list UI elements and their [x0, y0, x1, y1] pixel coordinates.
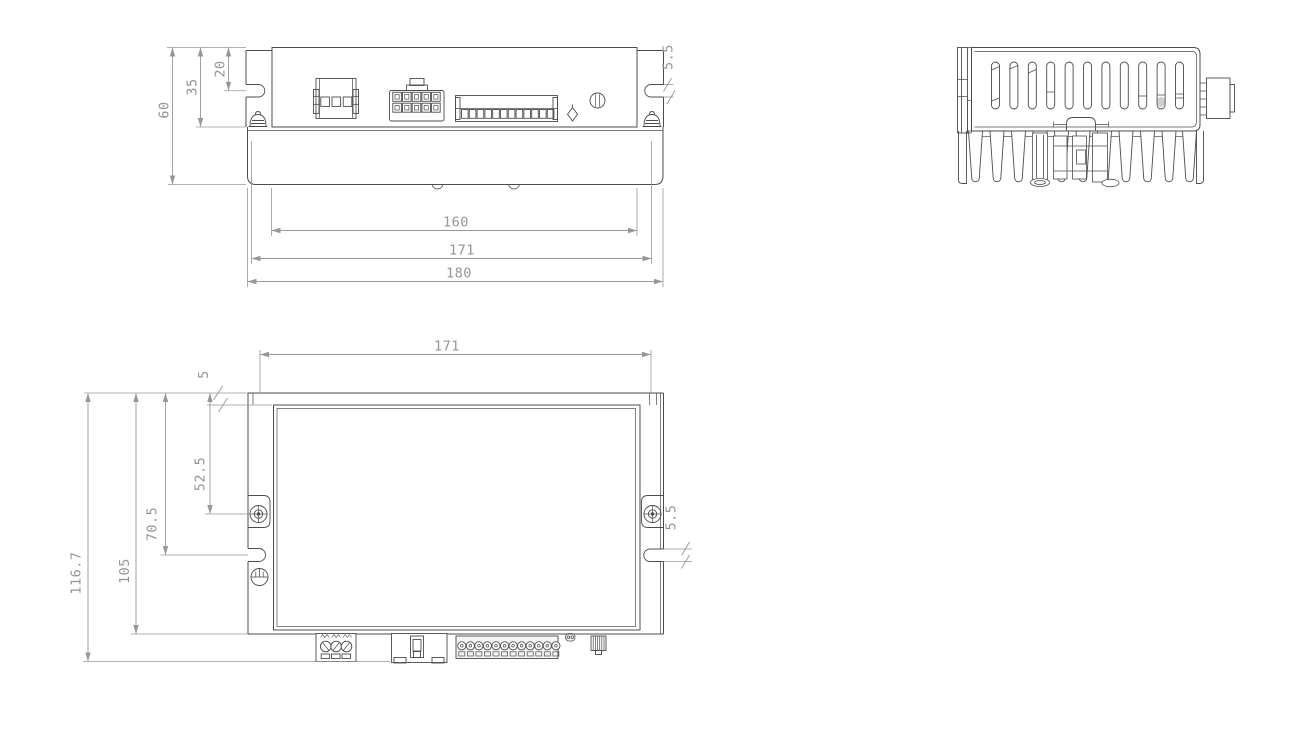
- dimension-5: 5: [196, 370, 272, 412]
- front-dimensions: 2035601601711805.5: [157, 44, 677, 287]
- power-terminal-top: [316, 634, 356, 662]
- mounting-slot-right-front: [645, 85, 664, 98]
- dimension-171: 171: [260, 339, 651, 394]
- power-terminal-front: [314, 79, 359, 119]
- dim-label-5.5: 5.5: [661, 44, 677, 70]
- vent-slots: [992, 62, 1184, 109]
- dim-label-116.7: 116.7: [69, 551, 85, 594]
- dim-label-52.5: 52.5: [193, 457, 209, 492]
- potentiometer-top: [591, 636, 606, 655]
- front-lower-housing: [248, 127, 664, 189]
- drawing-canvas: 2035601601711805.5 171552.570.5105116.75…: [0, 0, 1300, 755]
- signal-terminal-pins: [462, 110, 554, 119]
- dim-label-35: 35: [185, 78, 201, 95]
- aux-component: [566, 634, 576, 642]
- dimension-160: 160: [272, 188, 638, 236]
- flange-screw-left: [249, 112, 268, 127]
- dimension-116.7: 116.7: [69, 393, 391, 662]
- top-dimensions: 171552.570.5105116.75.5: [69, 339, 693, 662]
- flange-screw-right: [643, 112, 662, 127]
- dim-label-5: 5: [196, 370, 212, 379]
- dimension-20: 20: [213, 48, 247, 91]
- dimension-171: 171: [252, 141, 652, 264]
- top-view: [248, 393, 664, 663]
- dimension-52.5: 52.5: [193, 393, 252, 514]
- dim-label-20: 20: [213, 60, 229, 77]
- mounting-plate: [248, 393, 664, 634]
- dimension-105: 105: [117, 393, 248, 634]
- dim-label-160: 160: [443, 215, 469, 231]
- dimension-35: 35: [185, 48, 247, 128]
- signal-terminal-front: [456, 96, 558, 122]
- mounting-tab-left: [248, 496, 270, 528]
- ground-screw: [251, 569, 268, 586]
- motor-connector-top: [392, 634, 448, 664]
- mounting-screw-left: [250, 505, 268, 523]
- internal-posts: [1031, 133, 1120, 187]
- dimension-60: 60: [157, 48, 247, 185]
- front-panel-edge: [958, 48, 972, 134]
- dimension-180: 180: [248, 188, 664, 287]
- mounting-slot-left-front: [246, 85, 265, 98]
- current-pot-front: [590, 93, 605, 108]
- mounting-slot-left-top: [248, 549, 266, 562]
- dim-label-70.5: 70.5: [145, 507, 161, 542]
- dim-label-180: 180: [446, 266, 472, 282]
- signal-terminal-top: [456, 636, 560, 659]
- retaining-clip: [1054, 118, 1109, 131]
- body-top-outline: [274, 405, 641, 630]
- mounting-ear-left: [246, 51, 272, 128]
- dim-label-171: 171: [434, 339, 460, 355]
- vent-internal-marks: [992, 66, 1184, 108]
- dimension-5.5: 5.5: [661, 44, 677, 104]
- side-view: [958, 48, 1235, 187]
- side-connector: [1200, 78, 1235, 119]
- dim-label-171: 171: [449, 243, 475, 259]
- dim-label-60: 60: [157, 101, 173, 118]
- front-view: [246, 48, 664, 190]
- status-led-icon: [568, 105, 578, 122]
- dim-label-105: 105: [117, 558, 133, 584]
- engineering-drawing: 2035601601711805.5 171552.570.5105116.75…: [0, 0, 1300, 755]
- mounting-slot-right-top: [644, 549, 664, 562]
- motor-connector-pin-grid: [393, 92, 440, 112]
- motor-connector-front: [390, 79, 445, 122]
- dimension-5.5: 5.5: [664, 505, 693, 569]
- dim-label-5.5: 5.5: [664, 505, 680, 531]
- mounting-screw-right: [644, 505, 662, 523]
- front-body-outline: [272, 48, 637, 128]
